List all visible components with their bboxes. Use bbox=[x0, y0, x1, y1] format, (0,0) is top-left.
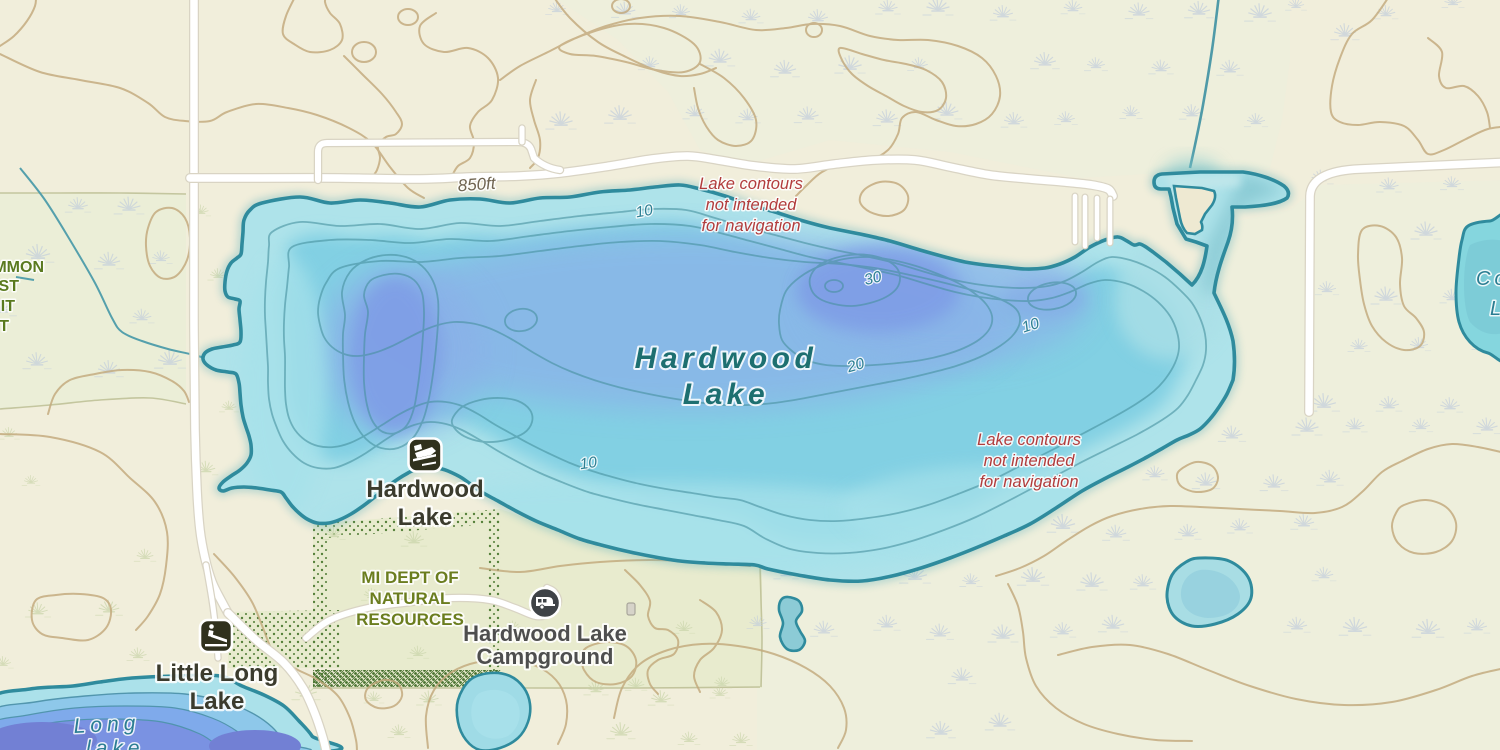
svg-text:Lake contours: Lake contours bbox=[699, 175, 803, 193]
svg-text:10: 10 bbox=[634, 202, 654, 222]
svg-text:Hardwood: Hardwood bbox=[635, 342, 818, 375]
svg-text:T: T bbox=[0, 318, 9, 335]
svg-text:Lake: Lake bbox=[398, 504, 453, 531]
svg-text:for navigation: for navigation bbox=[701, 217, 800, 235]
svg-text:Hardwood Lake: Hardwood Lake bbox=[463, 621, 627, 646]
svg-text:10: 10 bbox=[579, 454, 599, 473]
svg-text:not intended: not intended bbox=[984, 452, 1076, 470]
svg-text:Lake: Lake bbox=[190, 688, 245, 715]
svg-text:MMON: MMON bbox=[0, 259, 44, 276]
svg-text:ST: ST bbox=[0, 278, 19, 295]
svg-text:Lake contours: Lake contours bbox=[977, 431, 1081, 449]
svg-text:IT: IT bbox=[1, 298, 15, 315]
svg-text:Campground: Campground bbox=[477, 644, 614, 669]
svg-text:Hardwood: Hardwood bbox=[366, 476, 483, 503]
svg-text:RESOURCES: RESOURCES bbox=[356, 610, 464, 629]
svg-text:NATURAL: NATURAL bbox=[370, 589, 451, 608]
svg-text:Long: Long bbox=[73, 712, 141, 738]
svg-text:850ft: 850ft bbox=[457, 174, 497, 196]
svg-text:Little Long: Little Long bbox=[156, 660, 279, 687]
svg-text:not intended: not intended bbox=[706, 196, 798, 214]
svg-text:Co: Co bbox=[1476, 268, 1500, 290]
svg-text:lake: lake bbox=[86, 737, 145, 750]
svg-text:Lake: Lake bbox=[683, 378, 769, 411]
svg-text:MI DEPT OF: MI DEPT OF bbox=[361, 568, 458, 587]
svg-text:for navigation: for navigation bbox=[979, 473, 1078, 491]
svg-text:La: La bbox=[1490, 298, 1500, 320]
